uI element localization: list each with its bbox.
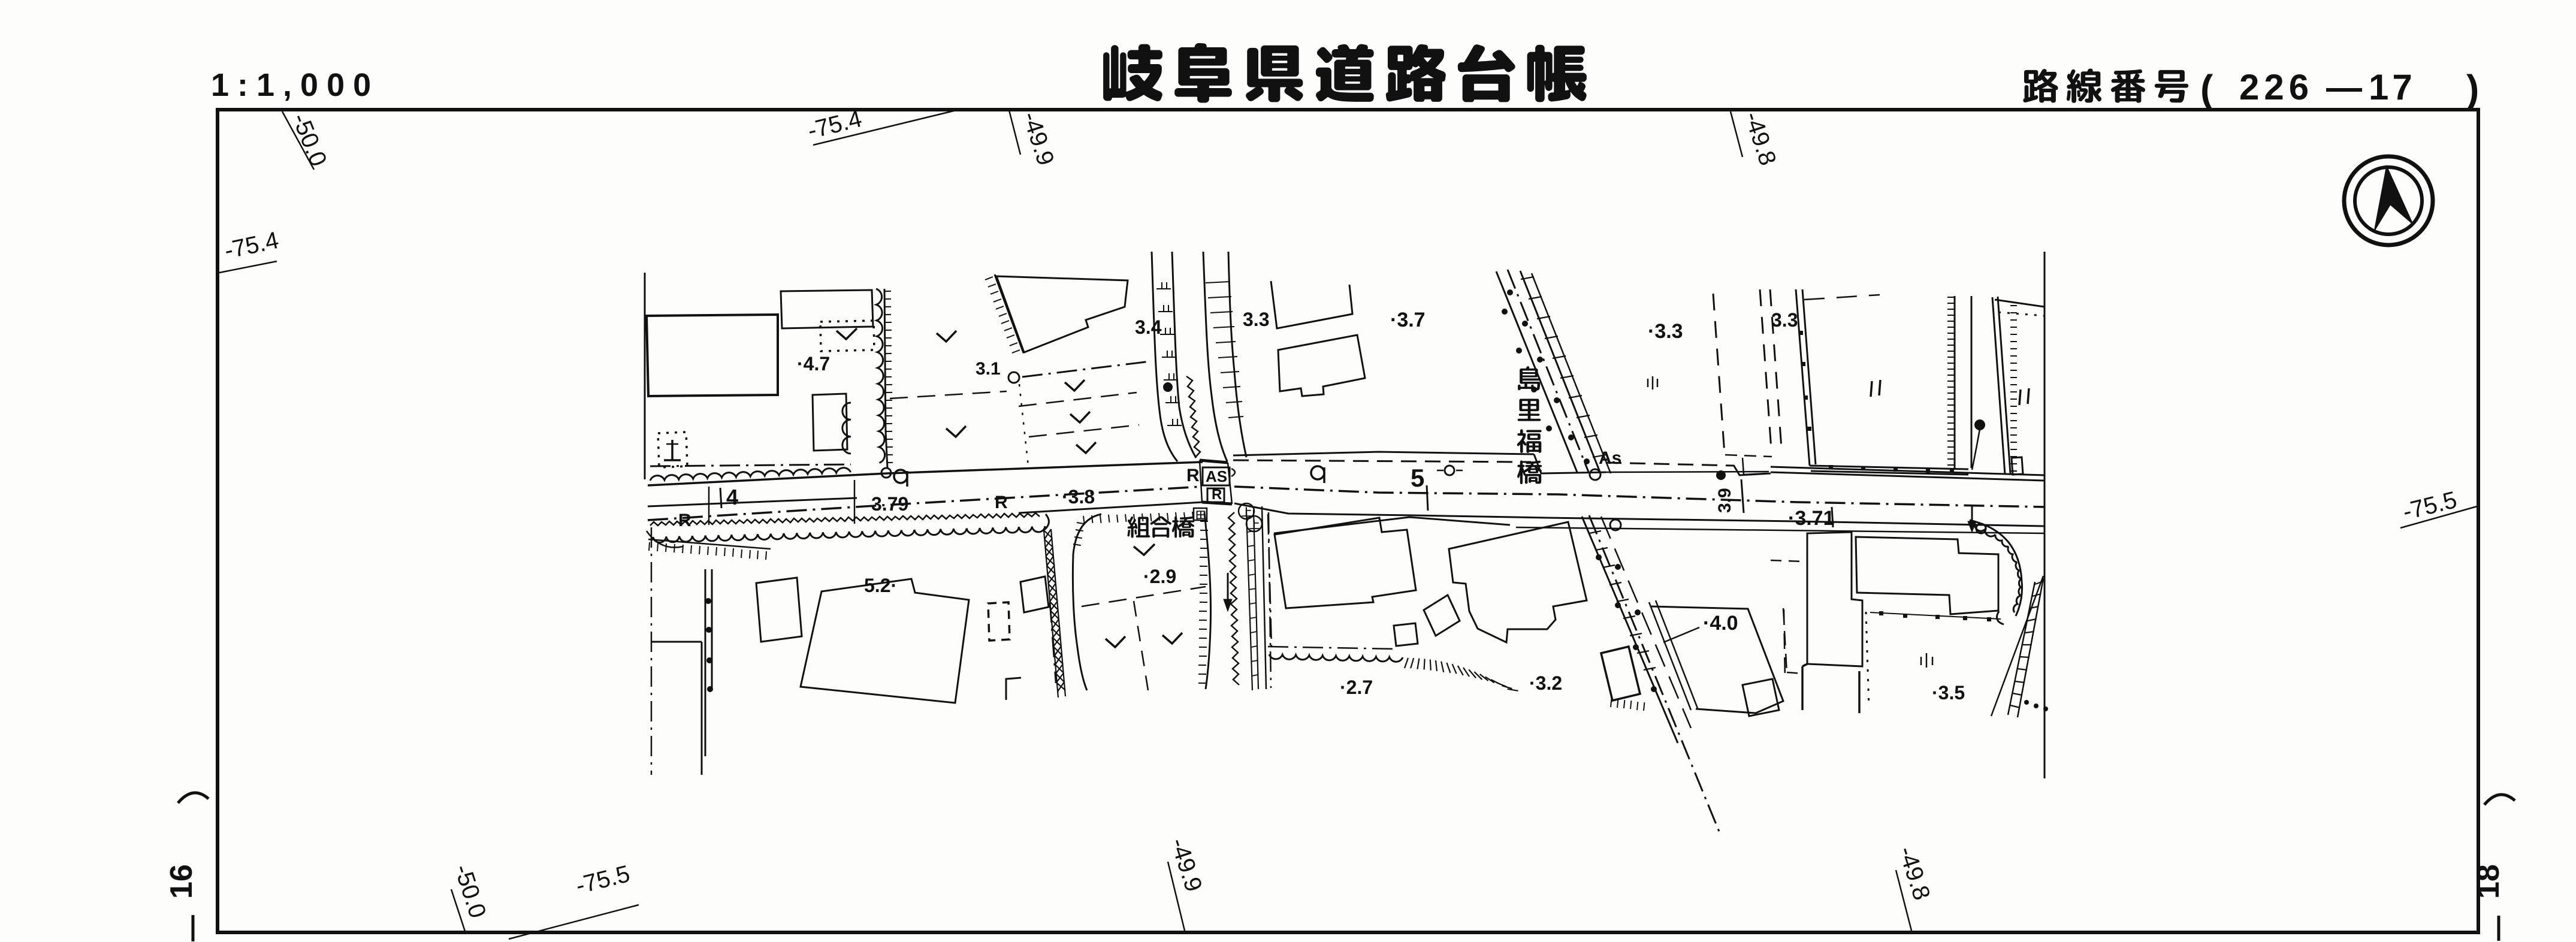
svg-text:): ) (2466, 67, 2479, 110)
svg-text:·3.5: ·3.5 (1932, 682, 1965, 704)
svg-text:3.4: 3.4 (1135, 316, 1162, 338)
svg-text:·3.3: ·3.3 (1648, 320, 1683, 343)
svg-text:226: 226 (2239, 67, 2314, 107)
svg-text:·3.7: ·3.7 (1390, 309, 1426, 331)
svg-text:R: R (678, 511, 691, 530)
svg-text:4: 4 (726, 485, 738, 509)
svg-text:16: 16 (164, 864, 199, 899)
svg-text:·4.7: ·4.7 (797, 353, 830, 375)
svg-text:·4.0: ·4.0 (1703, 612, 1738, 635)
svg-text:17: 17 (2369, 67, 2416, 107)
svg-text:5: 5 (1411, 464, 1424, 492)
svg-text:AS: AS (1206, 467, 1227, 485)
svg-text:5.2·: 5.2· (864, 575, 897, 596)
svg-text:R: R (995, 493, 1008, 512)
svg-text:As: As (1599, 448, 1621, 468)
svg-text:3.3: 3.3 (1243, 309, 1269, 330)
svg-text:·3.8: ·3.8 (1062, 486, 1095, 508)
svg-text:—: — (2326, 67, 2362, 107)
svg-text:3.79: 3.79 (871, 493, 908, 515)
svg-text:18: 18 (2471, 864, 2506, 899)
svg-text:(: ( (2200, 67, 2213, 110)
svg-text:R: R (1186, 466, 1200, 485)
svg-text:·2.9: ·2.9 (1143, 566, 1176, 587)
svg-text:R: R (1212, 487, 1222, 503)
svg-text:·3.2: ·3.2 (1529, 672, 1562, 694)
svg-text:3.3: 3.3 (1771, 309, 1798, 331)
svg-text:·2.7: ·2.7 (1340, 677, 1373, 698)
svg-text:3.9: 3.9 (1715, 488, 1735, 513)
svg-text:1:1,000: 1:1,000 (211, 67, 379, 103)
svg-text:·3.71: ·3.71 (1788, 507, 1835, 530)
svg-text:3.1: 3.1 (976, 359, 1001, 379)
